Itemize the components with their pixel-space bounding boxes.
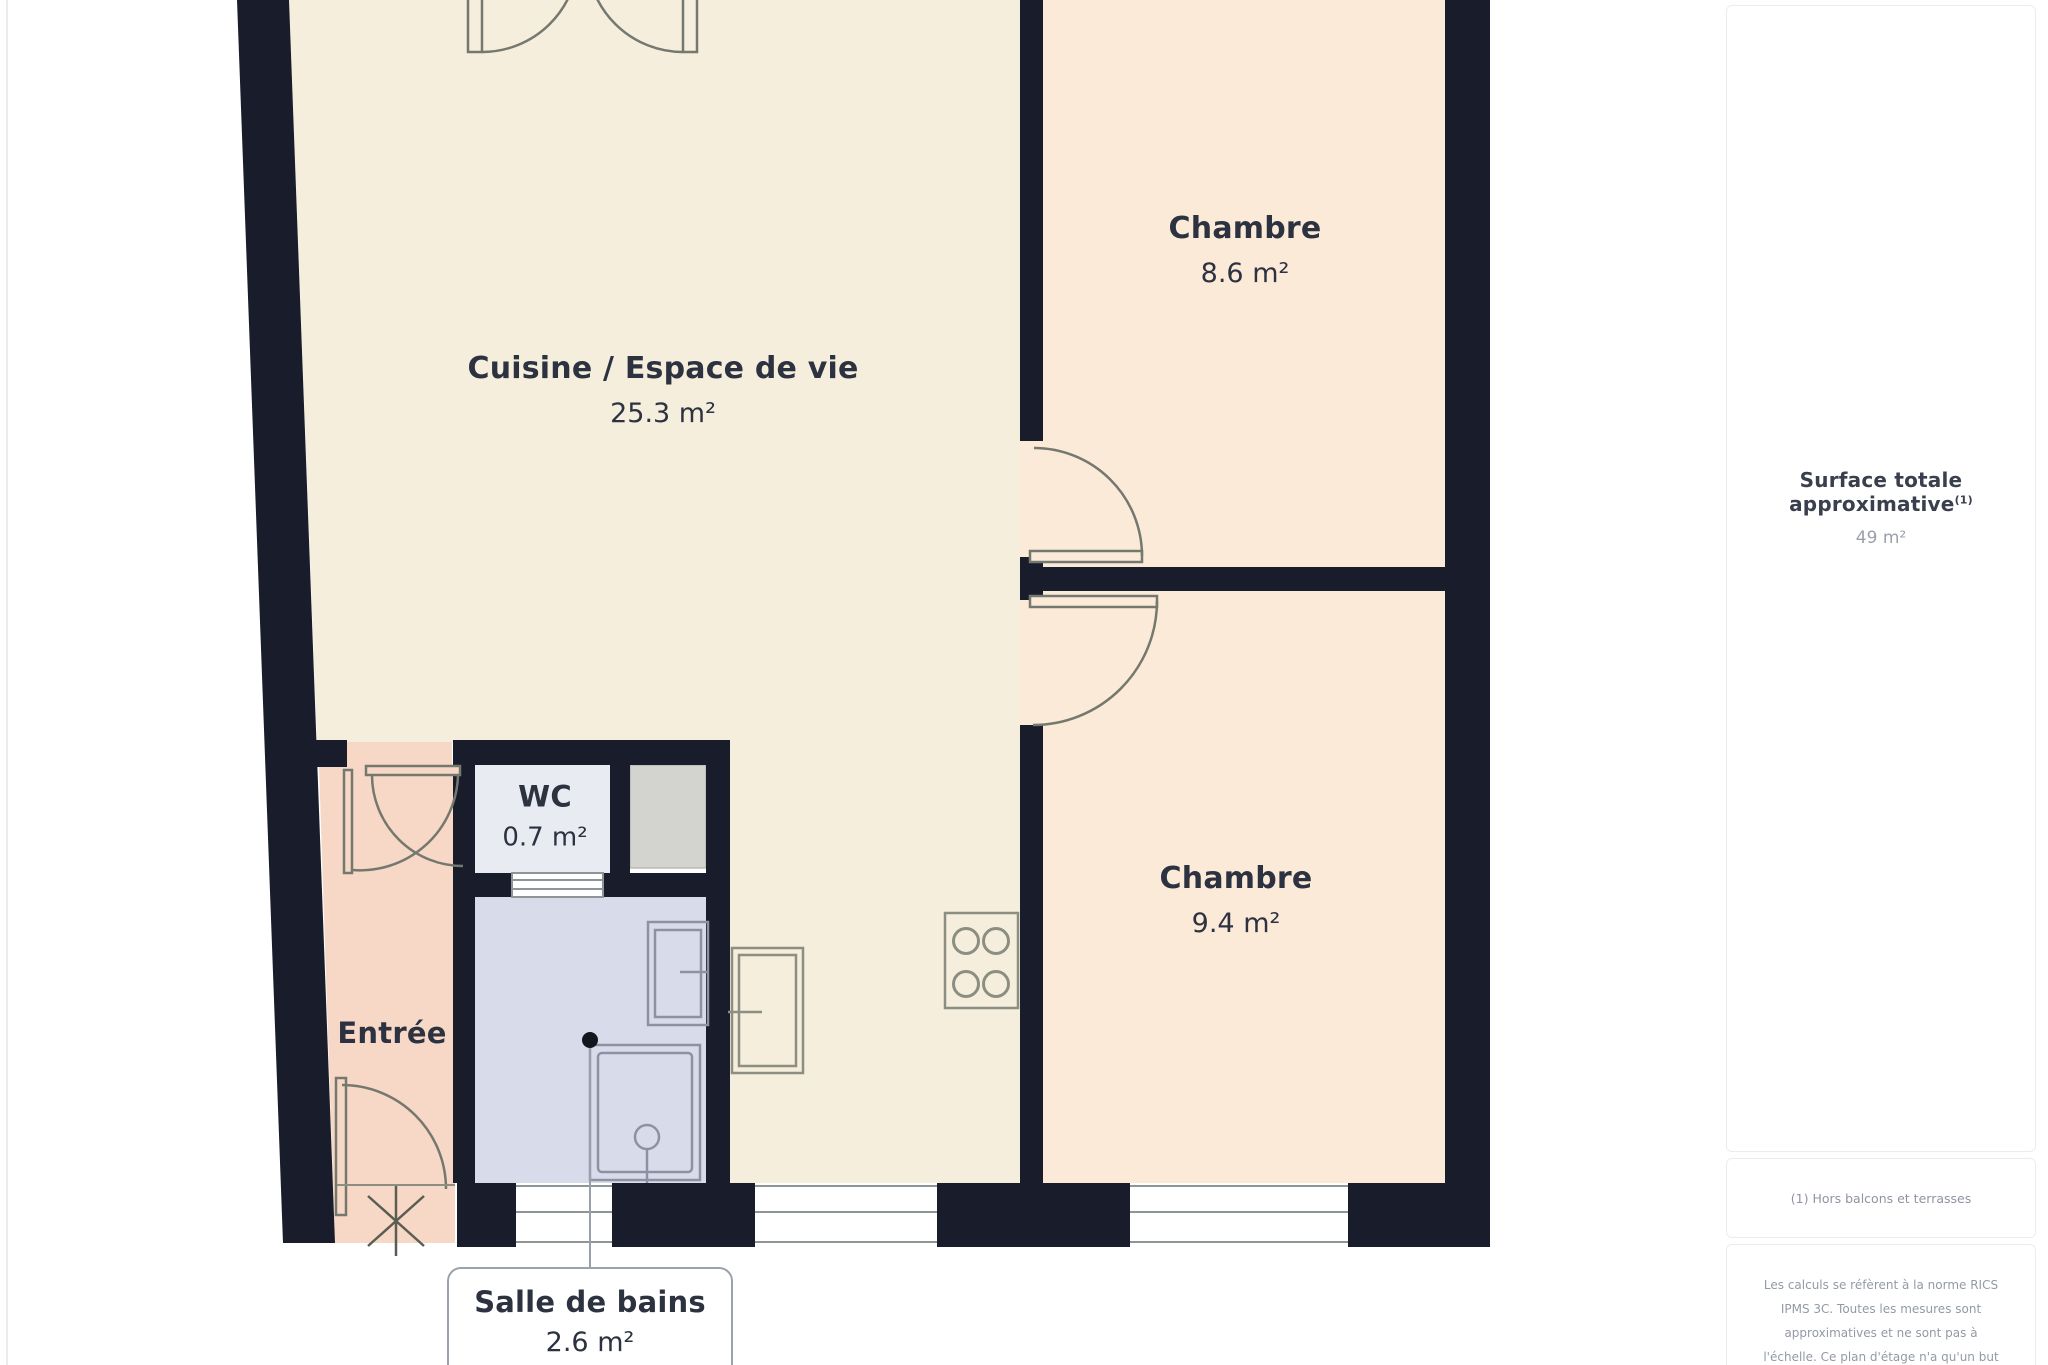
wall-right-outer [1445,0,1490,1247]
entree-doorway-floor [343,742,452,767]
disclaimer-line: Les calculs se réfèrent à la norme RICS [1727,1273,2035,1297]
wall-wc-shaft-divider [610,765,630,873]
surface-summary-card: Surface totale approximative(1) 49 m² [1726,5,2036,1152]
wall-wc-top [453,740,730,765]
window-chambre-bas [1130,1183,1348,1247]
floor-plan [0,0,1560,1365]
surface-total-value: 49 m² [1727,528,2035,548]
footnote-text: (1) Hors balcons et terrasses [1791,1191,1971,1206]
wall-wc-bottom-left [453,873,512,897]
wall-bottom-4 [1348,1183,1490,1247]
wall-cuisine-chambre-lower [1020,725,1043,1183]
label-salle-de-bains-box: Salle de bains 2.6 m² [447,1267,733,1365]
wall-wc-left [453,765,475,873]
chambre-haut-door-gap [1020,441,1043,557]
footnote-marker: (1) [1955,493,1973,506]
disclaimer-line: approximatives et ne sont pas à [1727,1321,2035,1345]
wall-entree-top [300,740,347,767]
wc-floor [475,765,610,873]
surface-total-title: Surface totale approximative(1) [1727,468,2035,516]
room-name: Salle de bains [449,1285,731,1319]
window-salle-de-bains [516,1183,612,1247]
footnote-card: (1) Hors balcons et terrasses [1726,1158,2036,1238]
wall-bottom-3 [937,1183,1130,1247]
surface-total-title-text: Surface totale approximative [1789,468,1962,516]
chambre-bas-floor [1043,591,1445,1183]
page: Cuisine / Espace de vie 25.3 m² Chambre … [0,0,2048,1365]
sidebar: Surface totale approximative(1) 49 m² (1… [1726,0,2042,1365]
wall-sdb-right [706,743,730,1183]
room-area: 2.6 m² [449,1327,731,1358]
label-anchor-dot [582,1032,598,1048]
chambre-haut-floor [1043,0,1445,567]
window-cuisine [755,1183,937,1247]
surface-summary: Surface totale approximative(1) 49 m² [1727,468,2035,548]
wall-bottom-2 [612,1183,755,1247]
sliding-door-wc [512,873,603,897]
wall-chambre-divider [1020,567,1445,591]
wall-wc-bottom-right [603,873,730,897]
wall-bottom-1 [457,1183,516,1247]
shaft-area [630,765,706,868]
wall-sdb-left [453,897,475,1183]
wall-cuisine-chambre-upper [1020,0,1043,441]
disclaimer-line: IPMS 3C. Toutes les mesures sont [1727,1297,2035,1321]
disclaimer-line: l'échelle. Ce plan d'étage n'a qu'un but [1727,1345,2035,1365]
disclaimer-card: Les calculs se réfèrent à la norme RICS … [1726,1244,2036,1365]
chambre-bas-door-gap [1020,600,1043,725]
